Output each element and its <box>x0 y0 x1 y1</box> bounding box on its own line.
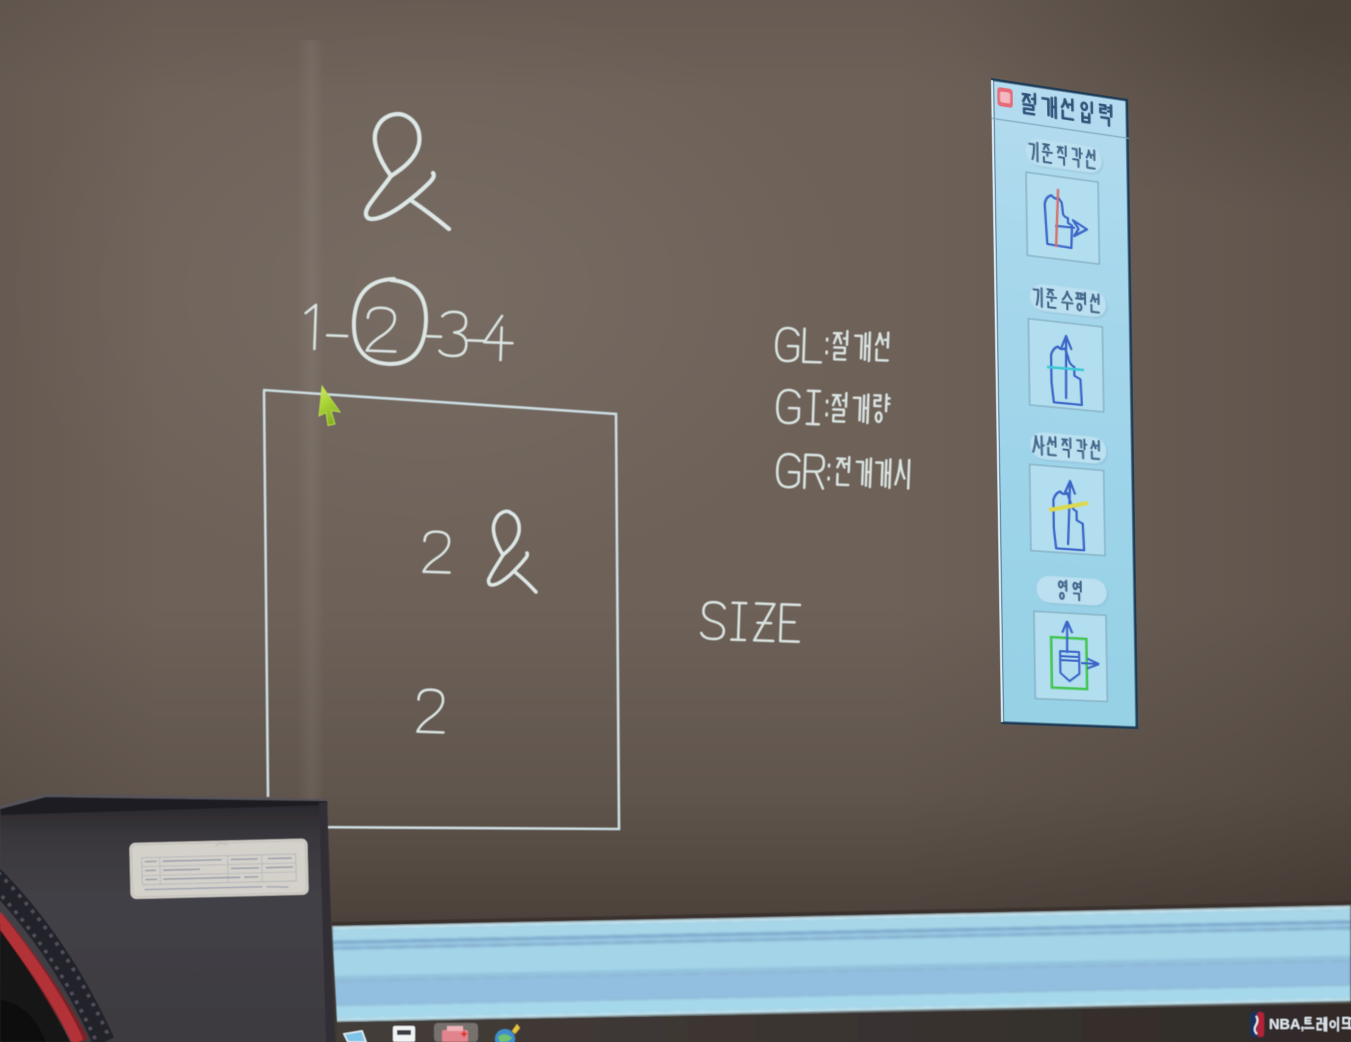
svg-text:NBA,: NBA, <box>1269 1017 1304 1033</box>
